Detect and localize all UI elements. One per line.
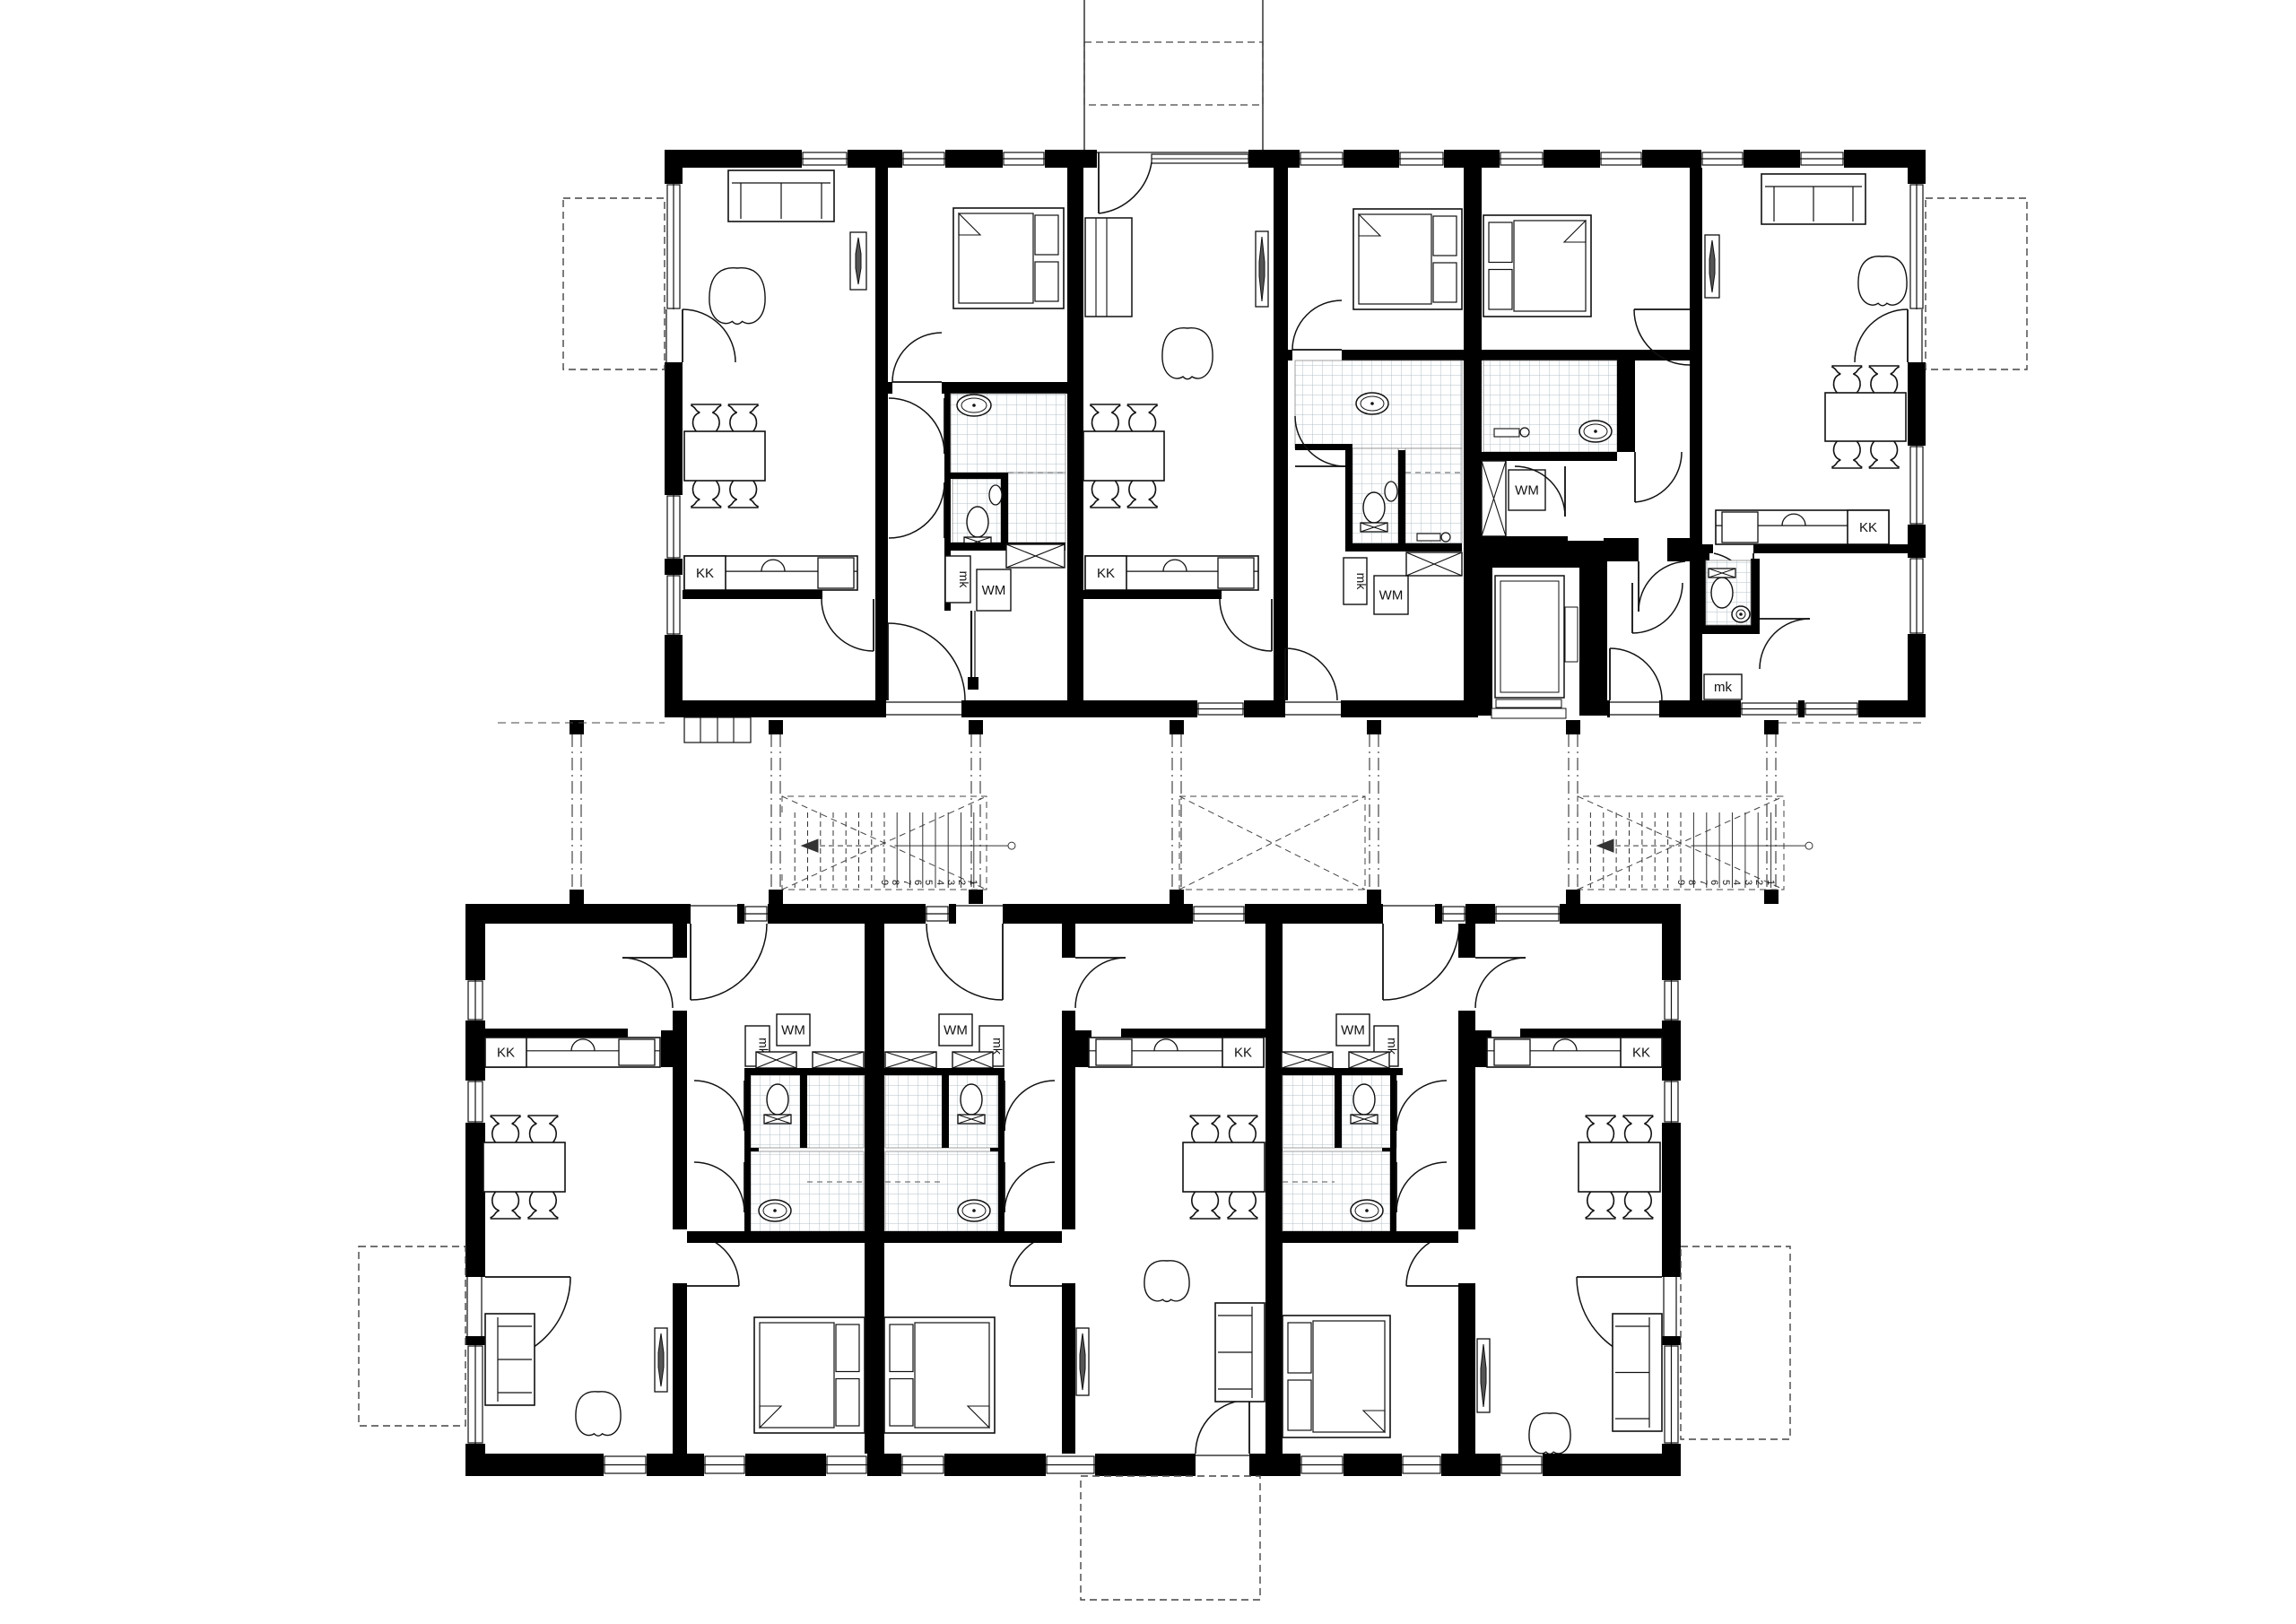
svg-text:WM: WM [1515, 483, 1539, 499]
svg-text:mk: mk [1354, 573, 1369, 591]
svg-text:KK: KK [1097, 566, 1115, 581]
svg-text:2: 2 [956, 880, 967, 885]
svg-text:8: 8 [890, 880, 900, 885]
svg-text:KK: KK [696, 566, 714, 581]
svg-text:KK: KK [1859, 520, 1877, 535]
svg-text:WM: WM [781, 1023, 805, 1038]
svg-text:6: 6 [912, 880, 923, 885]
svg-text:WM: WM [982, 583, 1006, 598]
svg-text:mk: mk [1714, 680, 1732, 695]
svg-text:3: 3 [1743, 880, 1753, 885]
svg-text:6: 6 [1709, 880, 1719, 885]
svg-text:4: 4 [1731, 880, 1742, 885]
svg-text:9: 9 [1675, 880, 1686, 885]
svg-text:3: 3 [945, 880, 956, 885]
svg-text:KK: KK [1632, 1046, 1650, 1061]
svg-text:1: 1 [968, 880, 978, 885]
svg-text:5: 5 [923, 880, 934, 885]
svg-text:1: 1 [1765, 880, 1776, 885]
svg-text:7: 7 [901, 880, 912, 885]
svg-text:WM: WM [1341, 1023, 1365, 1038]
svg-text:KK: KK [497, 1046, 515, 1061]
svg-text:WM: WM [1379, 588, 1404, 604]
svg-text:8: 8 [1686, 880, 1697, 885]
svg-text:2: 2 [1753, 880, 1764, 885]
svg-text:5: 5 [1720, 880, 1731, 885]
svg-text:7: 7 [1698, 880, 1709, 885]
svg-text:mk: mk [957, 571, 971, 589]
svg-text:9: 9 [879, 880, 890, 885]
svg-text:WM: WM [944, 1023, 968, 1038]
svg-text:KK: KK [1234, 1046, 1252, 1061]
svg-text:4: 4 [935, 880, 945, 885]
